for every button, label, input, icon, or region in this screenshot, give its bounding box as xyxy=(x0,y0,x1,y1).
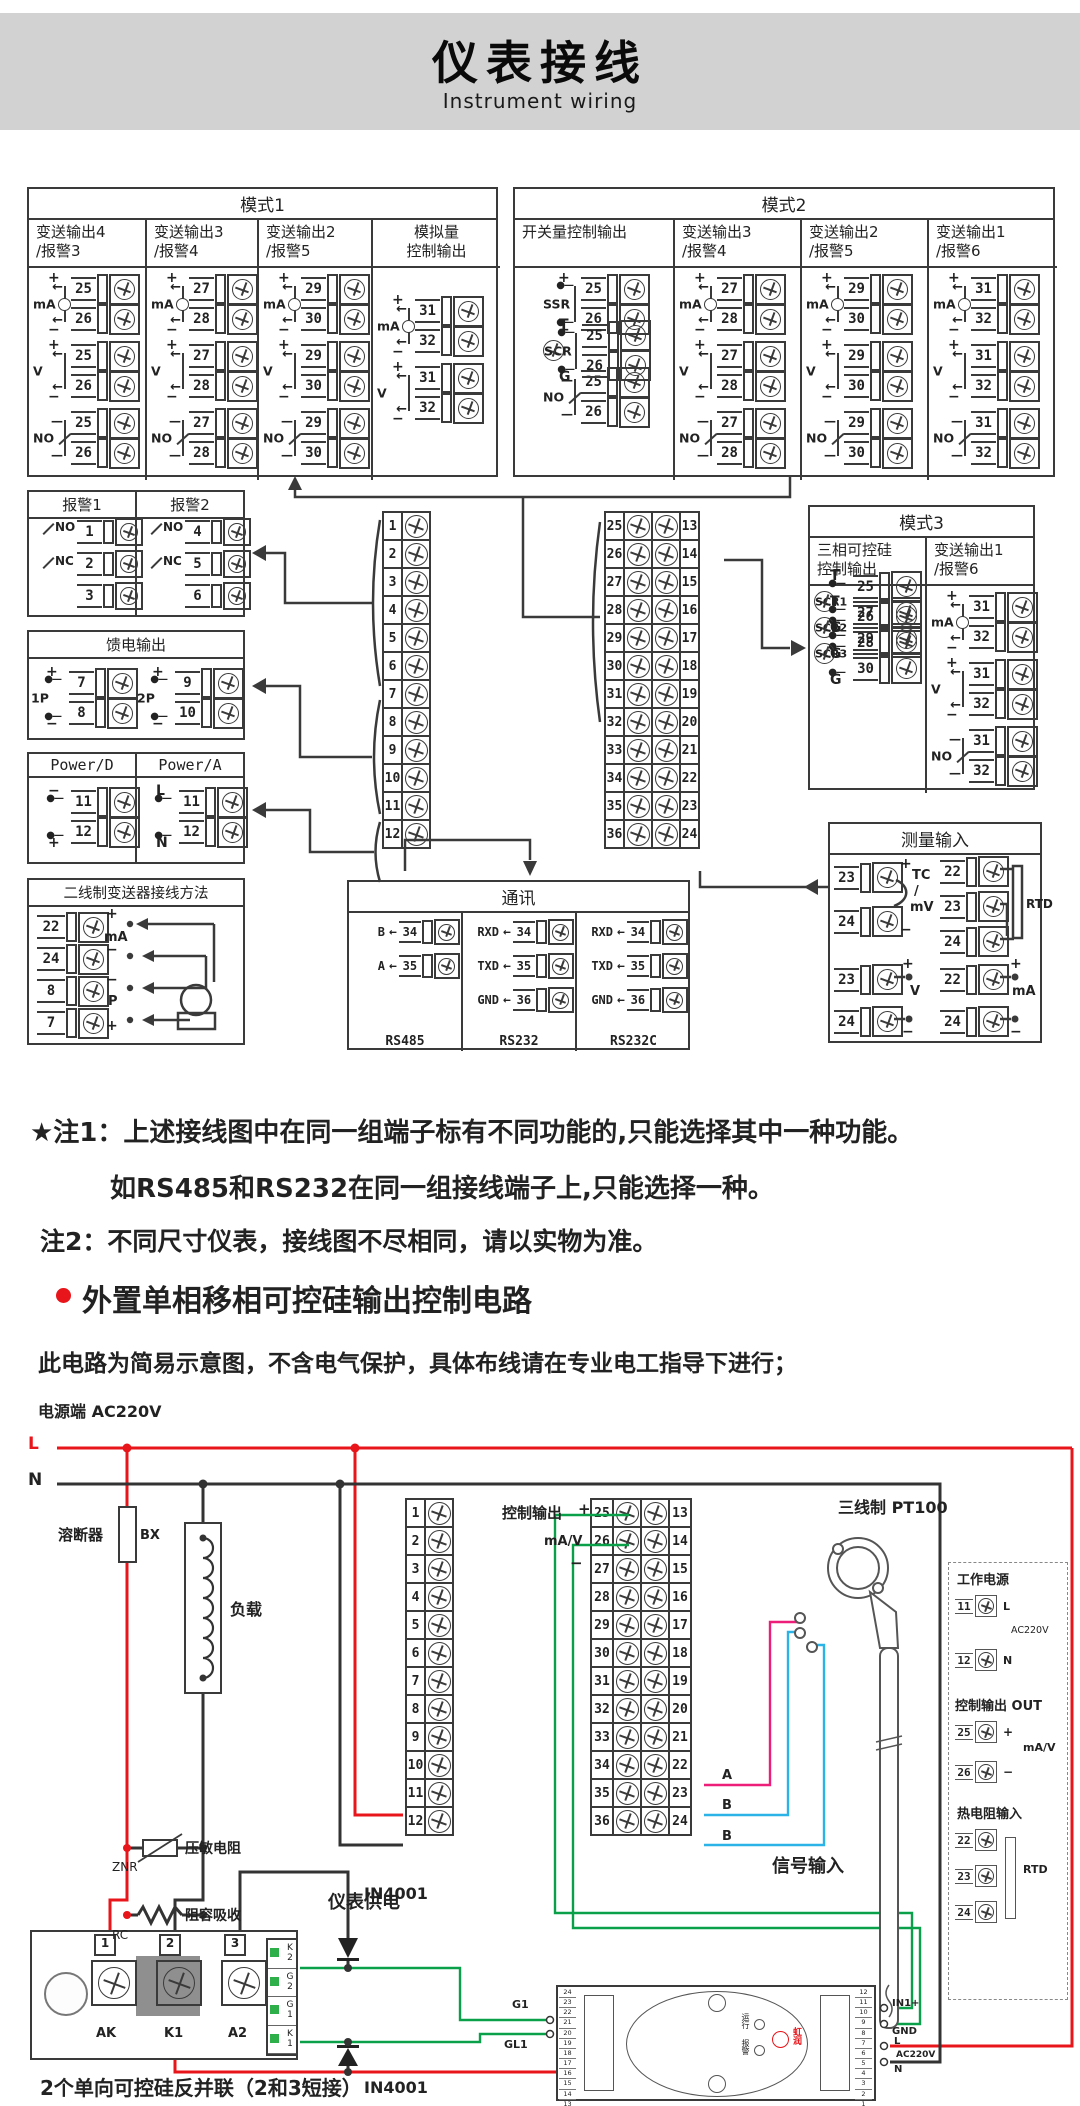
section-heading: 外置单相移相可控硅输出控制电路 xyxy=(82,1276,532,1320)
wire-b1-label: B xyxy=(722,1798,732,1813)
strip-row: 12 xyxy=(382,819,431,849)
note-1b: 如RS485和RS232在同一组接线端子上,只能选择一种。 xyxy=(110,1168,774,1205)
board-terminal: 9 xyxy=(855,2018,872,2028)
comm-row: RXD←34 xyxy=(581,917,690,947)
board-terminal: 10 xyxy=(855,2008,872,2018)
mode2-title: 模式2 xyxy=(515,189,1053,220)
g1-label: G1 xyxy=(512,1998,529,2011)
power-a: Power/A LN1112 xyxy=(137,754,243,862)
run-led-icon xyxy=(754,2019,765,2030)
strip-row: 3 xyxy=(382,567,431,597)
strip-row: 10 xyxy=(382,763,431,793)
feed-group: +1P−78 xyxy=(31,667,135,729)
board-terminal: 23 xyxy=(559,1998,576,2008)
screw-hole-icon xyxy=(708,2075,726,2093)
connector-cell: K2 xyxy=(268,1940,296,1969)
strip-row: 3422 xyxy=(604,763,700,793)
strip-row: 3624 xyxy=(604,819,700,849)
board-terminal: 13 xyxy=(559,2100,576,2106)
strip-row: 6 xyxy=(405,1638,454,1668)
board-terminal: 24 xyxy=(559,1988,576,1998)
screw-icon xyxy=(405,823,428,846)
diode2-label: IN4001 xyxy=(364,2078,428,2097)
screw-icon xyxy=(114,346,135,367)
screw-icon xyxy=(405,543,428,566)
strip-row: 10 xyxy=(405,1750,454,1780)
twowire-terminal: 24 xyxy=(37,945,243,973)
terminal-strip-left: 123456789101112 xyxy=(382,513,431,849)
strip-row: 8 xyxy=(405,1694,454,1724)
terminal-group: NO2728 xyxy=(151,407,257,469)
screw-icon xyxy=(405,599,428,622)
strip-row: 2917 xyxy=(590,1610,692,1640)
power-d: Power/D −+1112 xyxy=(29,754,137,862)
pt100-label: 三线制 PT100 xyxy=(838,1494,948,1518)
line-n-label: N xyxy=(28,1470,42,1490)
signal-in-label: 信号输入 xyxy=(772,1852,844,1878)
module-hole xyxy=(44,1972,88,2016)
line-l-label: L xyxy=(28,1434,39,1454)
comm-title: 通讯 xyxy=(349,882,688,913)
header-banner: 仪表接线 Instrument wiring xyxy=(0,13,1080,130)
comm-box: 通讯 B←34A←35 RS485 RXD←34TXD←35GND←36 RS2… xyxy=(347,880,690,1050)
rc-code: RC xyxy=(112,1928,128,1942)
terminal-group: NO2728 xyxy=(679,407,800,469)
gl1-label: GL1 xyxy=(504,2038,528,2051)
mode1-col1: 变送输出4/报警3 +mA−2526+V−2526NO2526 xyxy=(29,220,147,480)
strip-row: 2917 xyxy=(604,623,700,653)
terminal-group: TSCRG2526 xyxy=(543,340,564,361)
mode1-box: 模式1 变送输出4/报警3 +mA−2526+V−2526NO2526 变送输出… xyxy=(27,187,498,477)
strip-row: 4 xyxy=(405,1582,454,1612)
terminal-group: +mA−3132 xyxy=(931,591,1033,653)
rtd-resistor-icon xyxy=(1005,1837,1016,1919)
comm-row: GND←36 xyxy=(581,985,690,1015)
strip-row: 7 xyxy=(382,679,431,709)
alarm-box: 报警1 NO NC 1 2 3 报警2 NO NC 4 5 6 xyxy=(27,490,245,617)
mode1-title: 模式1 xyxy=(29,189,496,220)
strip-row: 3018 xyxy=(604,651,700,681)
twowire-box: 二线制变送器接线方法 222487 xyxy=(27,878,245,1045)
strip-row: 9 xyxy=(405,1722,454,1752)
module-caption: 2个单向可控硅反并联（2和3短接） xyxy=(40,2072,362,2101)
load-label: 负载 xyxy=(230,1596,262,1620)
terminal-group: +V−2526 xyxy=(33,340,145,402)
module-connector: K2G2G1K1 xyxy=(266,1938,298,2056)
strip-row: 2614 xyxy=(590,1526,692,1556)
strip-row: 3220 xyxy=(604,707,700,737)
rc-label: 阻容吸收 xyxy=(185,1905,241,1925)
terminal-group: +V−3132 xyxy=(931,658,1033,720)
terminal-group: +V−2728 xyxy=(151,340,257,402)
comm-rs232c: RXD←34TXD←35GND←36 RS232C xyxy=(577,913,690,1051)
left-arrow-icon: ← xyxy=(389,959,397,974)
board-terminal: 20 xyxy=(559,2029,576,2039)
board-slot xyxy=(820,1995,850,2091)
screw-icon xyxy=(114,413,135,434)
strip-row: 3321 xyxy=(604,735,700,765)
strip-row: 8 xyxy=(382,707,431,737)
board-terminal: 14 xyxy=(559,2090,576,2100)
strip-row: 6 xyxy=(382,651,431,681)
terminal-group: +mA−2526 xyxy=(33,273,145,335)
terminal-group: +V−2930 xyxy=(263,340,371,402)
strip-row: 3523 xyxy=(590,1778,692,1808)
page: 仪表接线 Instrument wiring 模式1 变送输出4/报警3 +mA… xyxy=(0,0,1080,2106)
strip-row: 12 xyxy=(405,1806,454,1836)
screw-icon xyxy=(114,309,135,330)
twowire-terminal: 8 xyxy=(37,977,243,1005)
terminal-group: +mA−2930 xyxy=(263,273,371,335)
alarm1: 报警1 NO NC 1 2 3 xyxy=(29,492,137,615)
strip-row: 2715 xyxy=(604,567,700,597)
mode2-col1: 开关量控制输出 +SSR−2526TSCRG2526NO2526 xyxy=(515,220,675,480)
bottom-strip-left: 123456789101112 xyxy=(405,1500,454,1836)
measure-title: 测量输入 xyxy=(830,824,1040,855)
strip-row: 3422 xyxy=(590,1750,692,1780)
page-title: 仪表接线 xyxy=(0,27,1080,93)
board-terminal: 17 xyxy=(559,2059,576,2069)
board-terminal: 4 xyxy=(855,2069,872,2079)
twowire-terminal: 22 xyxy=(37,913,243,941)
terminal-group: NO3132 xyxy=(931,725,1033,787)
screw-icon xyxy=(405,795,428,818)
red-bullet-icon xyxy=(56,1288,71,1303)
board-terminal: 1 xyxy=(855,2100,872,2106)
screw-hole-icon xyxy=(708,1994,726,2012)
strip-row: 5 xyxy=(382,623,431,653)
mode2-col4: 变送输出1/报警6 +mA−3132+V−3132NO3132 xyxy=(929,220,1057,480)
mode1-col2: 变送输出3/报警4 +mA−2728+V−2728NO2728 xyxy=(147,220,259,480)
strip-row: 11 xyxy=(405,1778,454,1808)
screw-icon xyxy=(405,767,428,790)
connector-cell: G2 xyxy=(268,1969,296,1998)
board-terminal: 8 xyxy=(855,2029,872,2039)
fuse-label: 溶断器 xyxy=(58,1524,103,1545)
mode2-box: 模式2 开关量控制输出 +SSR−2526TSCRG2526NO2526 变送输… xyxy=(513,187,1055,477)
strip-row: 3119 xyxy=(604,679,700,709)
terminal-group: NO2930 xyxy=(806,407,927,469)
supply-label: 电源端 AC220V xyxy=(38,1398,161,1422)
screw-icon xyxy=(114,376,135,397)
symbol: NO xyxy=(33,408,71,468)
strip-row: 2513 xyxy=(604,511,700,541)
terminal-group: +mA−3132 xyxy=(933,273,1057,335)
alarm2: 报警2 NO NC 4 5 6 xyxy=(137,492,243,615)
comm-row: TXD←35 xyxy=(467,951,575,981)
screw-icon xyxy=(405,711,428,734)
strip-row: 7 xyxy=(405,1666,454,1696)
legend-box: 工作电源 11L AC220V 12N 控制输出 OUT 25+ mA/V 26… xyxy=(948,1562,1068,2000)
mode2-col2: 变送输出3/报警4 +mA−2728+V−2728NO2728 xyxy=(675,220,802,480)
strip-row: 9 xyxy=(382,735,431,765)
note-1a: ★注1：上述接线图中在同一组端子标有不同功能的,只能选择其中一种功能。 xyxy=(30,1112,913,1149)
strip-row: 3 xyxy=(405,1554,454,1584)
alarm-led-icon xyxy=(754,2045,765,2056)
strip-row: 2816 xyxy=(590,1582,692,1612)
strip-row: 11 xyxy=(382,791,431,821)
section-caption: 此电路为简易示意图，不含电气保护，具体布线请在专业电工指导下进行； xyxy=(38,1344,797,1378)
strip-row: 2 xyxy=(382,539,431,569)
terminal-group: +V−3132 xyxy=(377,362,500,424)
strip-row: 3018 xyxy=(590,1638,692,1668)
terminal-group: +mA−2728 xyxy=(679,273,800,335)
wire-a-label: A xyxy=(722,1768,732,1783)
screw-icon xyxy=(405,683,428,706)
feed-group: +2P−910 xyxy=(137,667,241,729)
mode3-box: 模式3 三相可控硅控制输出 TSCR1G2526TSCR2G2728TSCR3G… xyxy=(808,505,1035,790)
symbol: +mA− xyxy=(33,274,71,334)
terminal-group: +mA−2930 xyxy=(806,273,927,335)
diode1-label: IN4001 xyxy=(364,1884,428,1903)
page-subtitle: Instrument wiring xyxy=(0,89,1080,113)
board-slot xyxy=(584,1995,614,2091)
terminal-group: +mA−2728 xyxy=(151,273,257,335)
znr-label: ZNR xyxy=(112,1860,138,1874)
strip-row: 5 xyxy=(405,1610,454,1640)
strip-row: 3624 xyxy=(590,1806,692,1836)
mode3-col1: 三相可控硅控制输出 TSCR1G2526TSCR2G2728TSCR3G2930 xyxy=(810,538,927,793)
strip-row: 1 xyxy=(405,1498,454,1528)
board-terminal: 22 xyxy=(559,2008,576,2018)
mode1-col4: 模拟量控制输出 +mA−3132+V−3132 xyxy=(373,220,500,480)
terminal-group: NO3132 xyxy=(933,407,1057,469)
board-terminal: 7 xyxy=(855,2039,872,2049)
trigger-board: 242322212019181716151413 121110987654321… xyxy=(556,1985,876,2101)
terminal-group: +V−2728 xyxy=(679,340,800,402)
terminal-group: NO2930 xyxy=(263,407,371,469)
feed-box: 馈电输出 +1P−78+2P−910 xyxy=(27,630,245,740)
strip-row: 1 xyxy=(382,511,431,541)
connector-cell: G1 xyxy=(268,1997,296,2026)
board-terminal: 21 xyxy=(559,2018,576,2028)
board-terminal: 11 xyxy=(855,1998,872,2008)
board-terminal: 19 xyxy=(559,2039,576,2049)
symbol: +V− xyxy=(33,341,71,401)
terminal-group: TSCR3G2930 xyxy=(814,643,835,664)
twowire-terminal: 7 xyxy=(37,1009,243,1037)
screw-icon xyxy=(405,655,428,678)
fuse-code: BX xyxy=(140,1528,160,1543)
terminal-group: +V−2930 xyxy=(806,340,927,402)
thyristor-module: 1 2 3 AK K1 A2 K2G2G1K1 xyxy=(30,1930,298,2060)
strip-row: 3523 xyxy=(604,791,700,821)
strip-row: 2715 xyxy=(590,1554,692,1584)
ctrl-out-label: 控制输出 xyxy=(502,1502,562,1523)
comm-row: GND←36 xyxy=(467,985,575,1015)
strip-row: 2513 xyxy=(590,1498,692,1528)
board-terminal: 16 xyxy=(559,2069,576,2079)
screw-icon xyxy=(405,739,428,762)
board-terminal: 5 xyxy=(855,2059,872,2069)
bottom-strip-right: 2513261427152816291730183119322033213422… xyxy=(590,1500,692,1836)
brand-logo-icon xyxy=(772,2031,789,2048)
comm-row: A←35 xyxy=(353,951,461,981)
comm-rs232: RXD←34TXD←35GND←36 RS232 xyxy=(463,913,577,1051)
mode2-col3: 变送输出2/报警5 +mA−2930+V−2930NO2930 xyxy=(802,220,929,480)
screw-icon xyxy=(114,279,135,300)
terminal-group: +V−3132 xyxy=(933,340,1057,402)
power-box: Power/D −+1112 Power/A LN1112 xyxy=(27,752,245,864)
comm-row: RXD←34 xyxy=(467,917,575,947)
board-terminal: 12 xyxy=(855,1988,872,1998)
terminal-group: +mA−3132 xyxy=(377,295,500,357)
strip-row: 3220 xyxy=(590,1694,692,1724)
mode3-col2: 变送输出1/报警6 +mA−3132+V−3132NO3132 xyxy=(927,538,1033,793)
screw-icon xyxy=(405,571,428,594)
terminal-strip-right: 2513261427152816291730183119322033213422… xyxy=(604,513,700,849)
varistor-label: 压敏电阻 xyxy=(185,1838,241,1858)
board-terminal: 3 xyxy=(855,2079,872,2089)
connector-cell: K1 xyxy=(268,2026,296,2055)
terminal-group: NO2526 xyxy=(33,407,145,469)
board-terminal: 18 xyxy=(559,2049,576,2059)
screw-icon xyxy=(405,627,428,650)
mode1-col3: 变送输出2/报警5 +mA−2930+V−2930NO2930 xyxy=(259,220,373,480)
strip-row: 2614 xyxy=(604,539,700,569)
board-terminal: 6 xyxy=(855,2049,872,2059)
comm-rs485: B←34A←35 RS485 xyxy=(349,913,463,1051)
strip-row: 2816 xyxy=(604,595,700,625)
board-terminal: 15 xyxy=(559,2079,576,2089)
note-2: 注2：不同尺寸仪表，接线图不尽相同，请以实物为准。 xyxy=(40,1222,657,1258)
strip-row: 3119 xyxy=(590,1666,692,1696)
screw-icon xyxy=(114,443,135,464)
mode3-title: 模式3 xyxy=(810,507,1033,538)
left-arrow-icon: ← xyxy=(389,925,397,940)
wire-b2-label: B xyxy=(722,1829,732,1844)
strip-row: 4 xyxy=(382,595,431,625)
strip-row: 3321 xyxy=(590,1722,692,1752)
comm-row: TXD←35 xyxy=(581,951,690,981)
comm-row: B←34 xyxy=(353,917,461,947)
screw-icon xyxy=(405,515,428,538)
strip-row: 2 xyxy=(405,1526,454,1556)
board-terminal: 2 xyxy=(855,2090,872,2100)
